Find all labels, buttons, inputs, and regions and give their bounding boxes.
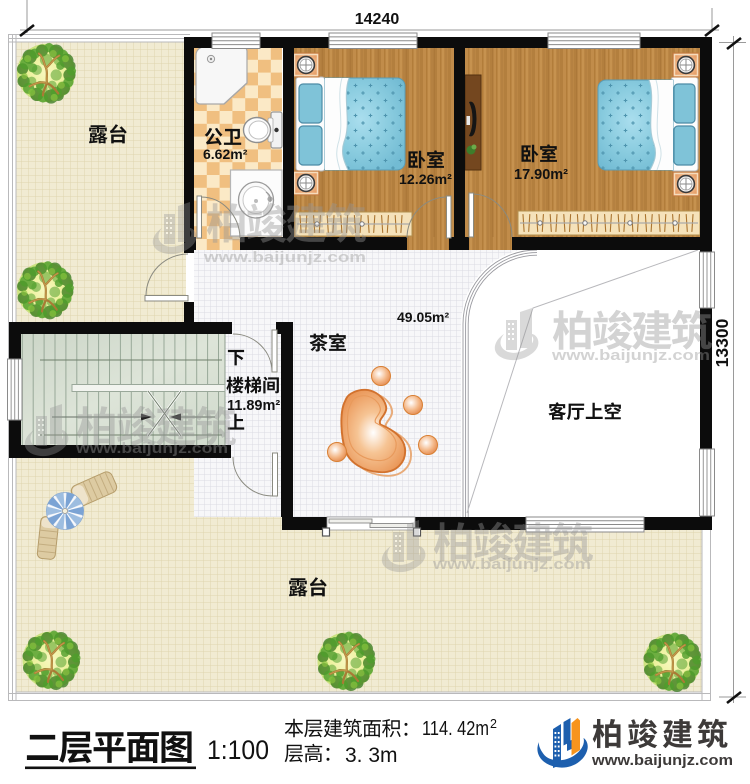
svg-text:www.baijunjz.com: www.baijunjz.com [551,347,710,364]
svg-text:49.05m²: 49.05m² [397,309,449,325]
svg-text:www.baijunjz.com: www.baijunjz.com [432,556,591,573]
svg-text:11.89m²: 11.89m² [227,398,280,414]
svg-text:12.26m²: 12.26m² [399,172,452,188]
svg-text:www.baijunjz.com: www.baijunjz.com [203,249,366,266]
svg-text:17.90m²: 17.90m² [514,167,568,183]
svg-text:www.baijunjz.com: www.baijunjz.com [591,752,733,769]
svg-text:2: 2 [490,717,497,731]
svg-text:114. 42m: 114. 42m [422,717,489,740]
svg-text:14240: 14240 [355,11,400,28]
svg-text:6.62m²: 6.62m² [203,146,248,162]
svg-text:3. 3m: 3. 3m [345,744,398,767]
svg-text:www.baijunjz.com: www.baijunjz.com [75,440,228,457]
svg-text:13300: 13300 [712,318,732,367]
svg-text:1:100: 1:100 [207,735,269,765]
